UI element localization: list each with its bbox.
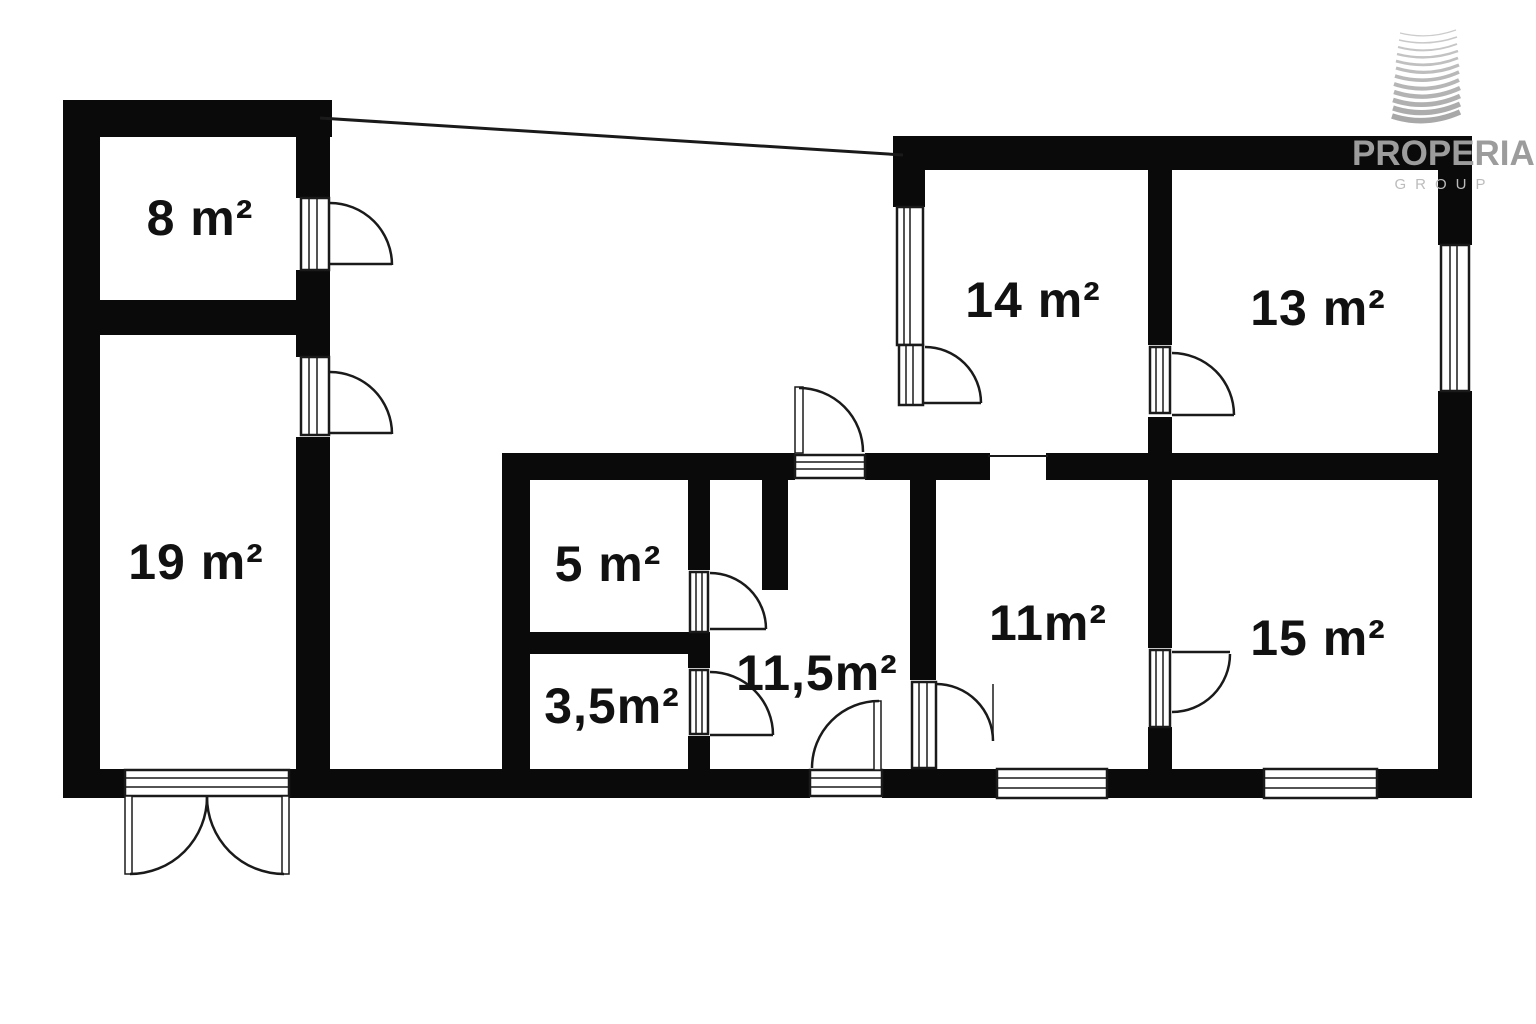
room-label-13: 13 m² — [1250, 283, 1386, 333]
window-room14-left-wall — [897, 207, 923, 345]
room-label-11-5: 11,5m² — [736, 648, 898, 698]
door-room11-room15 — [1150, 650, 1230, 727]
wall-bottom-seg5 — [1377, 769, 1472, 798]
floor-plan-drawing — [0, 0, 1536, 1024]
room-label-11: 11m² — [989, 598, 1107, 648]
wall-top-left-exterior — [63, 100, 332, 137]
window-room13-right-wall — [1441, 245, 1469, 391]
wall-bottom-seg3 — [882, 769, 997, 798]
door-room14-room13 — [1150, 347, 1234, 415]
door-main-entrance — [125, 770, 289, 874]
door-hallway-room11 — [912, 682, 993, 768]
window-room11-bottom-wall — [997, 769, 1107, 798]
door-hallway-exterior — [810, 701, 882, 796]
wall-mid-h-seg2 — [865, 453, 990, 480]
wall-14-13-seg — [1148, 170, 1172, 345]
wall-11-15-seg1 — [1148, 417, 1172, 648]
floor-plan: 8 m² 19 m² 14 m² 13 m² 5 m² 3,5m² 11,5m²… — [0, 0, 1536, 1024]
wall-8-19-right-seg3 — [296, 437, 330, 769]
room-label-5: 5 m² — [555, 539, 662, 589]
wall-8-19-right-seg1 — [296, 100, 330, 198]
logo-subtitle-text: GROUP — [1352, 176, 1528, 193]
wall-left-exterior — [63, 100, 100, 797]
wall-5-right-seg1 — [688, 453, 710, 570]
wall-right-exterior-lower — [1438, 391, 1472, 798]
wall-5-left — [502, 453, 530, 769]
door-room5-hallway — [690, 572, 766, 632]
wall-bottom-seg4 — [1107, 769, 1264, 798]
properia-logo: PROPERIA GROUP — [1352, 136, 1528, 193]
room-label-15: 15 m² — [1250, 613, 1386, 663]
wall-11-15-seg2 — [1148, 727, 1172, 769]
window-room15-bottom-wall — [1264, 769, 1377, 798]
logo-brand-text: PROPERIA — [1352, 136, 1528, 173]
properia-logo-waves-icon — [1392, 30, 1460, 121]
wall-5-35-divider — [502, 632, 710, 654]
wall-14-left-top — [893, 136, 925, 207]
wall-5-right-seg3 — [688, 736, 710, 769]
wall-mid-h-seg1 — [502, 453, 795, 480]
open-area-top-boundary-line — [320, 118, 903, 155]
room-label-8: 8 m² — [147, 193, 254, 243]
wall-hall-11 — [910, 480, 936, 680]
wall-mid-h-seg3 — [1046, 453, 1472, 480]
wall-bottom-seg1 — [63, 769, 125, 798]
room-label-3-5: 3,5m² — [544, 681, 680, 731]
wall-bottom-seg2 — [289, 769, 810, 798]
wall-8-19-divider — [63, 300, 330, 335]
wall-hall-stub — [762, 453, 788, 590]
door-openarea-hallway — [795, 387, 865, 478]
door-room19 — [301, 357, 392, 435]
door-openarea-room14 — [899, 345, 981, 405]
room-label-14: 14 m² — [965, 275, 1101, 325]
wall-5-right-seg2 — [688, 632, 710, 668]
door-room8 — [301, 198, 392, 270]
room-label-19: 19 m² — [128, 537, 264, 587]
